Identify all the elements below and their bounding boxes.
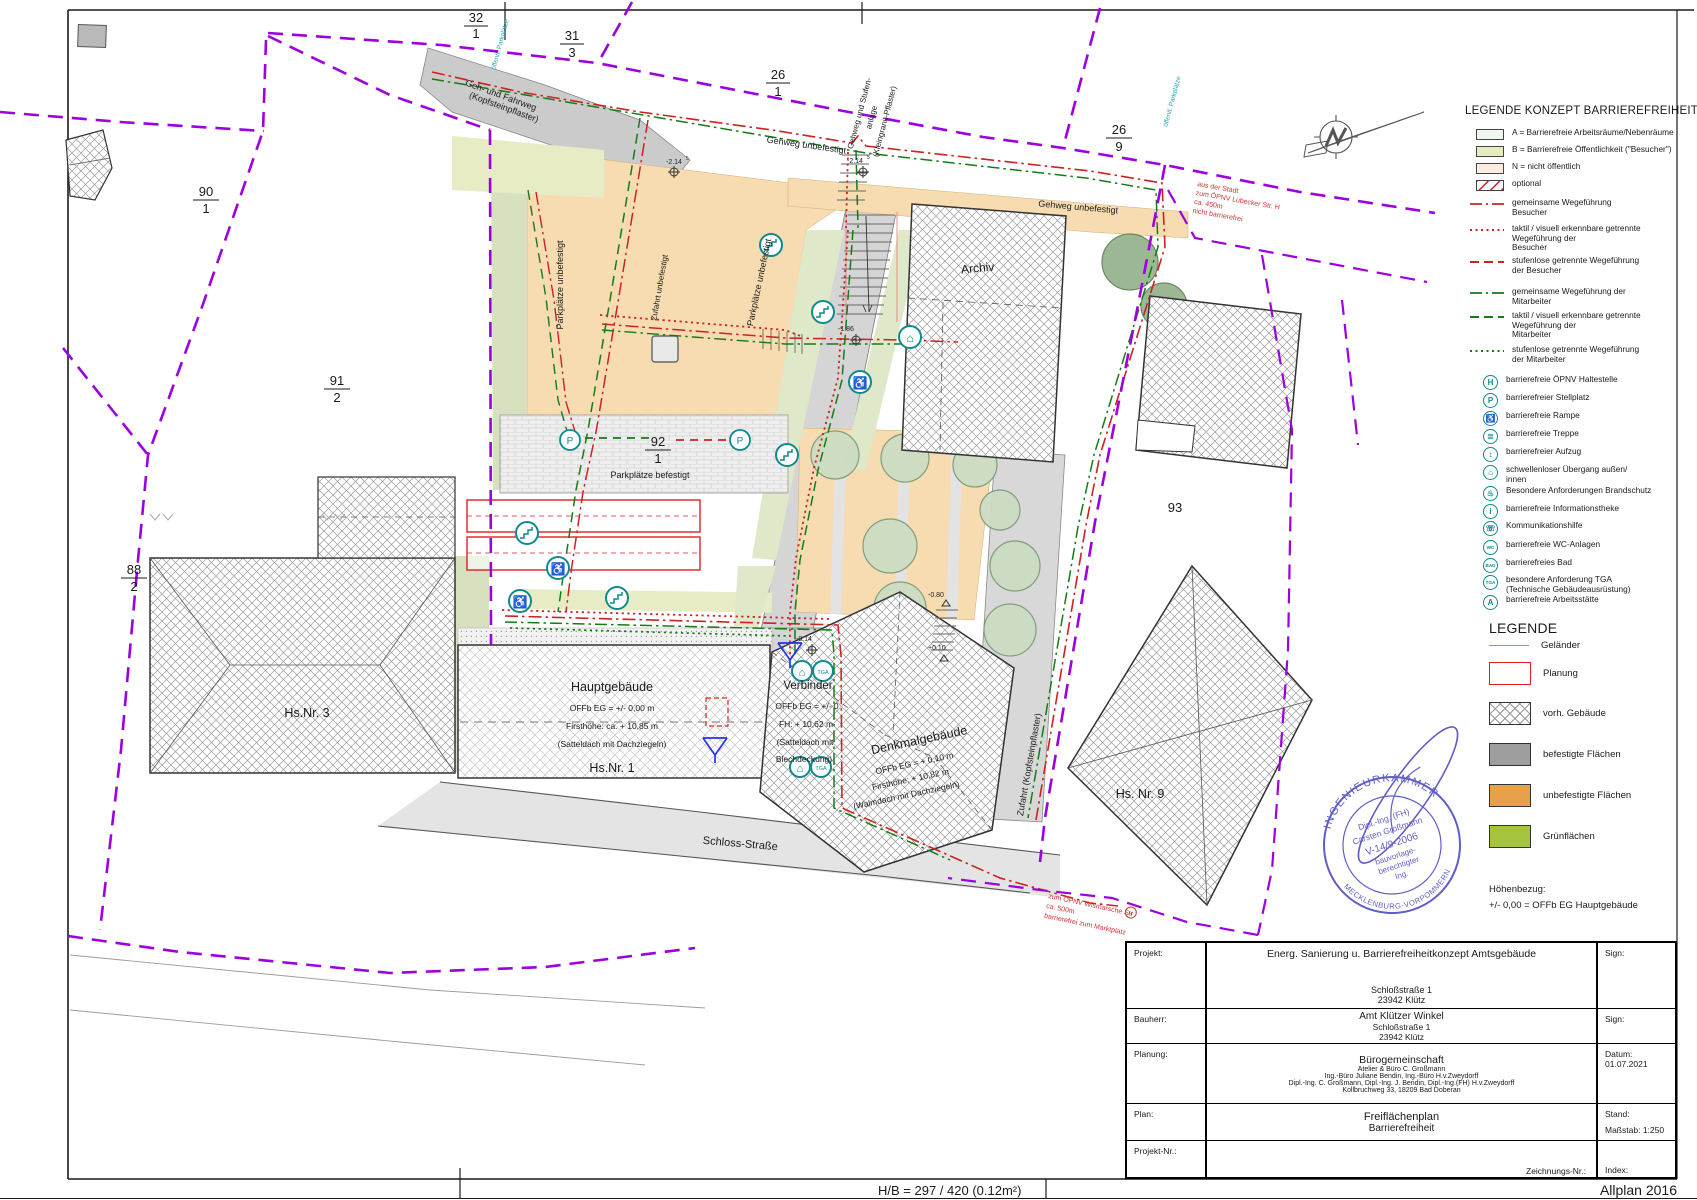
svg-text:2: 2: [130, 579, 137, 594]
software-credit: Allplan 2016: [1540, 1182, 1677, 1198]
legend-surface-item: Planung: [1489, 662, 1578, 685]
building-label: Hs. Nr. 9: [1116, 787, 1165, 801]
parcel-label: 313: [560, 28, 584, 60]
legend-icon-item: WCbarrierefreie WC-Anlagen: [1483, 540, 1676, 555]
parcel-label: 93: [1168, 500, 1182, 515]
area-label: Gehweg unbefestigt: [766, 135, 847, 156]
title-block-row-projektnr: Projekt-Nr.: Zeichnungs-Nr.: Index:: [1127, 1140, 1675, 1179]
svg-text:⌂: ⌂: [906, 331, 913, 345]
svg-text:Hauptgebäude: Hauptgebäude: [571, 680, 653, 694]
svg-text:31: 31: [565, 28, 579, 43]
svg-text:26: 26: [1112, 122, 1126, 137]
legend-line-item: gemeinsame Wegeführung Besucher: [1470, 198, 1682, 217]
title-block: Projekt: Energ. Sanierung u. Barrierefre…: [1125, 941, 1677, 1179]
svg-text:OFFb EG = +/- 0: OFFb EG = +/- 0: [775, 701, 839, 711]
projekt-title: Energ. Sanierung u. Barrierefreiheitkonz…: [1207, 948, 1596, 960]
svg-text:⌂: ⌂: [797, 763, 804, 775]
treppe-icon: [606, 587, 628, 609]
oepnv-annotation-south: zum ÖPNV Wismarsche Str H ca. 500m barri…: [1043, 890, 1137, 938]
legend-line-item: taktil / visuell erkennbare getrennte We…: [1470, 311, 1682, 340]
svg-text:1: 1: [654, 451, 661, 466]
svg-text:3: 3: [568, 45, 575, 60]
svg-text:barrierefrei zum Marktplatz: barrierefrei zum Marktplatz: [1043, 913, 1126, 937]
gelaender-swatch: [1489, 645, 1529, 646]
stand-label: Stand:: [1605, 1109, 1675, 1119]
tga-icon: TGA: [813, 661, 833, 681]
rampe-icon: ♿: [849, 371, 871, 393]
legend-surface-item: unbefestigte Flächen: [1489, 784, 1631, 807]
legend-icon-item: Hbarrierefreie ÖPNV Haltestelle: [1483, 375, 1676, 390]
parcel-label: 321: [464, 10, 488, 41]
legend-surfaces-title: LEGENDE: [1489, 620, 1557, 636]
title-block-row-projekt: Projekt: Energ. Sanierung u. Barrierefre…: [1127, 943, 1675, 1008]
kommunikation-icon: ☏: [1483, 521, 1498, 536]
planung-detail2: Ing.-Büro Juliane Bendin, Ing.-Büro H.v.…: [1207, 1073, 1596, 1080]
infotheke-icon: i: [1483, 504, 1498, 519]
stellplatz-icon: P: [560, 430, 580, 450]
svg-text:FH: + 10,62 m: FH: + 10,62 m: [779, 719, 833, 729]
svg-text:-1.86: -1.86: [838, 326, 854, 333]
massstab-label: Maßstab:: [1605, 1125, 1640, 1135]
svg-text:5: 5: [867, 155, 870, 161]
north-arrow-icon: [1304, 112, 1424, 159]
parcel-label: 912: [324, 373, 350, 405]
building-hs3: [150, 477, 455, 773]
svg-text:91: 91: [330, 373, 344, 388]
planung-swatch: [1489, 662, 1531, 685]
building-archiv: [902, 204, 1066, 462]
sheet-corner-marker: [78, 25, 107, 48]
datum-field: Datum: 01.07.2021: [1598, 1044, 1675, 1103]
title-block-row-bauherr: Bauherr: Amt Klützer Winkel Schloßstraße…: [1127, 1008, 1675, 1043]
svg-text:5: 5: [686, 156, 689, 162]
rampe-icon: ♿: [1483, 411, 1498, 426]
arbeitsstaette-icon: A: [1483, 595, 1498, 610]
svg-text:2: 2: [333, 390, 340, 405]
gruenflaechen-swatch: [1489, 825, 1531, 848]
parcel-label: 882: [121, 562, 147, 594]
legend-area-item: N = nicht öffentlich: [1476, 162, 1682, 174]
stand-field: Stand: Maßstab: 1:250: [1598, 1104, 1675, 1140]
massstab-value: 1:250: [1643, 1125, 1664, 1135]
plan-name2: Barrierefreiheit: [1207, 1123, 1596, 1134]
legend-line-item: gemeinsame Wegeführung der Mitarbeiter: [1470, 287, 1682, 306]
zeichnungsnr-label: Zeichnungs-Nr.:: [1526, 1166, 1586, 1176]
bestand-swatch: [1489, 702, 1531, 725]
projekt-label: Projekt:: [1127, 943, 1207, 1008]
green-dashed-line: [1470, 314, 1504, 320]
area-a-swatch: [1476, 129, 1504, 140]
engineer-stamp: INGENIEURKAMMER MECKLENBURG-VORPOMMERN D…: [1305, 717, 1478, 931]
legend-surface-item: Geländer: [1489, 640, 1580, 651]
projekt-address1: Schloßstraße 1: [1207, 985, 1596, 995]
title-block-row-plan: Plan: Freiflächenplan Barrierefreiheit S…: [1127, 1103, 1675, 1140]
title-block-row-planung: Planung: Bürogemeinschaft Atelier & Büro…: [1127, 1043, 1675, 1103]
svg-text:90: 90: [199, 184, 213, 199]
svg-text:Hs.Nr. 1: Hs.Nr. 1: [589, 761, 634, 775]
parcel-label: 261: [766, 67, 790, 99]
svg-text:88: 88: [127, 562, 141, 577]
parcel-label: 269: [1106, 122, 1132, 154]
svg-text:nicht barrierefrei: nicht barrierefrei: [1192, 208, 1243, 224]
svg-text:⌂: ⌂: [799, 667, 806, 679]
legend-icon-item: ≣barrierefreie Treppe: [1483, 429, 1676, 444]
svg-text:92: 92: [651, 434, 665, 449]
green-dotted-line: [1470, 348, 1504, 354]
plan-name1: Freiflächenplan: [1207, 1111, 1596, 1123]
legend-line-item: stufenlose getrennte Wegeführung der Bes…: [1470, 256, 1682, 275]
projekt-address2: 23942 Klütz: [1207, 995, 1596, 1005]
befestigt-swatch: [1489, 743, 1531, 766]
legend-icon-item: Abarrierefreie Arbeitsstätte: [1483, 595, 1676, 610]
bauherr-address2: 23942 Klütz: [1207, 1032, 1596, 1042]
legend-icon-item: ibarrierefreie Informationstheke: [1483, 504, 1676, 519]
stellplatz-icon: P: [730, 430, 750, 450]
svg-text:♿: ♿: [853, 376, 868, 390]
legend-surface-item: Grünflächen: [1489, 825, 1595, 848]
bauherr-label: Bauherr:: [1127, 1009, 1207, 1043]
treppe-icon: [516, 522, 538, 544]
legend-concept-title: LEGENDE KONZEPT BARRIEREFREIHEIT: [1465, 105, 1697, 117]
index-label: Index:: [1605, 1165, 1628, 1175]
legend-line-item: stufenlose getrennte Wegeführung der Mit…: [1470, 345, 1682, 364]
svg-text:♿: ♿: [513, 595, 528, 609]
parking-sign-symbol: [652, 336, 678, 362]
aufzug-icon: ↕: [1483, 447, 1498, 462]
building-topleft-small: [66, 130, 112, 200]
haltestelle-icon: H: [1483, 375, 1498, 390]
legend-icon-item: ♿barrierefreie Rampe: [1483, 411, 1676, 426]
svg-text:(Satteldach mit Dachziegeln): (Satteldach mit Dachziegeln): [558, 739, 667, 749]
bad-icon: BAD: [1483, 558, 1498, 573]
planung-detail4: Kollbruchweg 33, 18209 Bad Doberan: [1207, 1087, 1596, 1094]
svg-text:9: 9: [1115, 139, 1122, 154]
legend-area-item: A = Barrierefreie Arbeitsräume/Nebenräum…: [1476, 128, 1682, 140]
area-n-swatch: [1476, 163, 1504, 174]
planung-detail1: Atelier & Büro C. Großmann: [1207, 1066, 1596, 1073]
treppe-icon: ≣: [1483, 429, 1498, 444]
bauherr-name: Amt Klützer Winkel: [1207, 1011, 1596, 1022]
legend-icon-item: ↕barrierefreier Aufzug: [1483, 447, 1676, 462]
legend-icon-item: ☏Kommunikationshilfe: [1483, 521, 1676, 536]
building-label: Hs.Nr. 3: [284, 706, 329, 720]
svg-text:Firsthöhe: ca. + 10,85 m: Firsthöhe: ca. + 10,85 m: [566, 721, 658, 731]
rampe-icon: ♿: [547, 557, 569, 579]
building-label: Archiv: [960, 260, 994, 277]
svg-text:-2.14: -2.14: [666, 159, 682, 166]
planung-detail3: Dipl.-Ing. C. Großmann, Dipl.-Ing. J. Be…: [1207, 1080, 1596, 1087]
planung-label: Planung:: [1127, 1044, 1207, 1103]
svg-text:♿: ♿: [551, 562, 566, 576]
red-dashed-line: [1470, 259, 1504, 265]
vegetation-marks: [150, 514, 345, 520]
building-east: [1136, 296, 1301, 468]
svg-text:1: 1: [472, 26, 479, 41]
rampe-icon: ♿: [509, 590, 531, 612]
legend-surface-item: befestigte Flächen: [1489, 743, 1621, 766]
area-label-cyan: öffentl. Parkplätze: [1162, 75, 1182, 127]
legend-area-item: optional: [1476, 179, 1682, 191]
legend-icon-item: Pbarrierefreier Stellplatz: [1483, 393, 1676, 408]
tga-icon: TGA: [1483, 575, 1498, 590]
svg-text:-0.80: -0.80: [928, 592, 944, 599]
building-hs9: [1068, 566, 1312, 905]
uebergang-icon: ⌂: [1483, 465, 1498, 480]
index-field: Index:: [1598, 1141, 1675, 1179]
uebergang-icon: ⌂: [792, 661, 812, 681]
plan-label: Plan:: [1127, 1104, 1207, 1140]
svg-text:-2.14: -2.14: [847, 158, 863, 165]
stellplatz-icon: P: [1483, 393, 1498, 408]
area-label: Parkplätze befestigt: [610, 470, 690, 480]
area-label: Parkplätze unbefestigt: [555, 240, 565, 330]
svg-text:-0.14: -0.14: [796, 636, 812, 643]
area-b-swatch: [1476, 146, 1504, 157]
sheet-size-note: H/B = 297 / 420 (0.12m²): [878, 1183, 1021, 1198]
svg-text:Verbinder: Verbinder: [783, 680, 832, 692]
parcel-label: 901: [193, 184, 219, 216]
sign-field: Sign:: [1598, 943, 1675, 1008]
svg-text:OFFb EG = +/- 0,00 m: OFFb EG = +/- 0,00 m: [570, 703, 655, 713]
svg-text:+0.10: +0.10: [928, 645, 946, 652]
svg-text:Blechdeckung): Blechdeckung): [776, 754, 832, 764]
legend-icon-item: TGAbesondere Anforderung TGA (Technische…: [1483, 575, 1676, 594]
svg-text:TGA: TGA: [815, 766, 827, 772]
unbefestigt-swatch: [1489, 784, 1531, 807]
gravel-strip: [458, 628, 772, 646]
legend-area-item: B = Barrierefreie Öffentlichkeit ("Besuc…: [1476, 145, 1682, 157]
hoehenbezug-note: Höhenbezug: +/- 0,00 = OFFb EG Hauptgebä…: [1489, 882, 1638, 914]
svg-text:P: P: [567, 436, 574, 447]
datum-label: Datum:: [1605, 1049, 1632, 1059]
red-dashdot-line: [1470, 201, 1504, 207]
wc-icon: WC: [1483, 540, 1498, 555]
green-dashdot-line: [1470, 290, 1504, 296]
area-label-cyan: öffentl. Parkplätze: [490, 18, 510, 70]
legend-icon-item: ♨Besondere Anforderungen Brandschutz: [1483, 486, 1676, 501]
area-label: anlage: [864, 104, 879, 130]
red-dotted-line: [1470, 227, 1504, 233]
allplan-drawing-sheet: { "sheet": { "hb_note": "H/B = 297 / 420…: [0, 0, 1697, 1200]
svg-text:1: 1: [202, 201, 209, 216]
projektnr-label: Projekt-Nr.:: [1127, 1141, 1207, 1179]
bauherr-address1: Schloßstraße 1: [1207, 1022, 1596, 1032]
oepnv-annotation-north: aus der Stadt zum ÖPNV Lübecker Str. H c…: [1192, 181, 1282, 229]
svg-text:1: 1: [774, 84, 781, 99]
planung-firm: Bürogemeinschaft: [1207, 1054, 1596, 1066]
legend-icon-item: BADbarrierefreies Bad: [1483, 558, 1676, 573]
legend-surface-item: vorh. Gebäude: [1489, 702, 1606, 725]
svg-text:32: 32: [469, 10, 483, 25]
svg-text:H: H: [1128, 911, 1133, 918]
paved-parking: [500, 415, 788, 493]
svg-text:26: 26: [771, 67, 785, 82]
legend-icon-item: ⌂schwellenloser Übergang außen/ innen: [1483, 465, 1676, 484]
svg-text:(Satteldach mit: (Satteldach mit: [777, 737, 834, 747]
treppe-icon: [776, 444, 798, 466]
legend-line-item: taktil / visuell erkennbare getrennte We…: [1470, 224, 1682, 253]
svg-text:TGA: TGA: [817, 670, 829, 676]
treppe-icon: [812, 301, 834, 323]
sign-field: Sign:: [1598, 1009, 1675, 1043]
brandschutz-icon: ♨: [1483, 486, 1498, 501]
optional-hatch-swatch: [1476, 180, 1504, 191]
datum-value: 01.07.2021: [1605, 1059, 1648, 1069]
svg-text:P: P: [737, 436, 744, 447]
uebergang-icon: ⌂: [899, 326, 921, 348]
